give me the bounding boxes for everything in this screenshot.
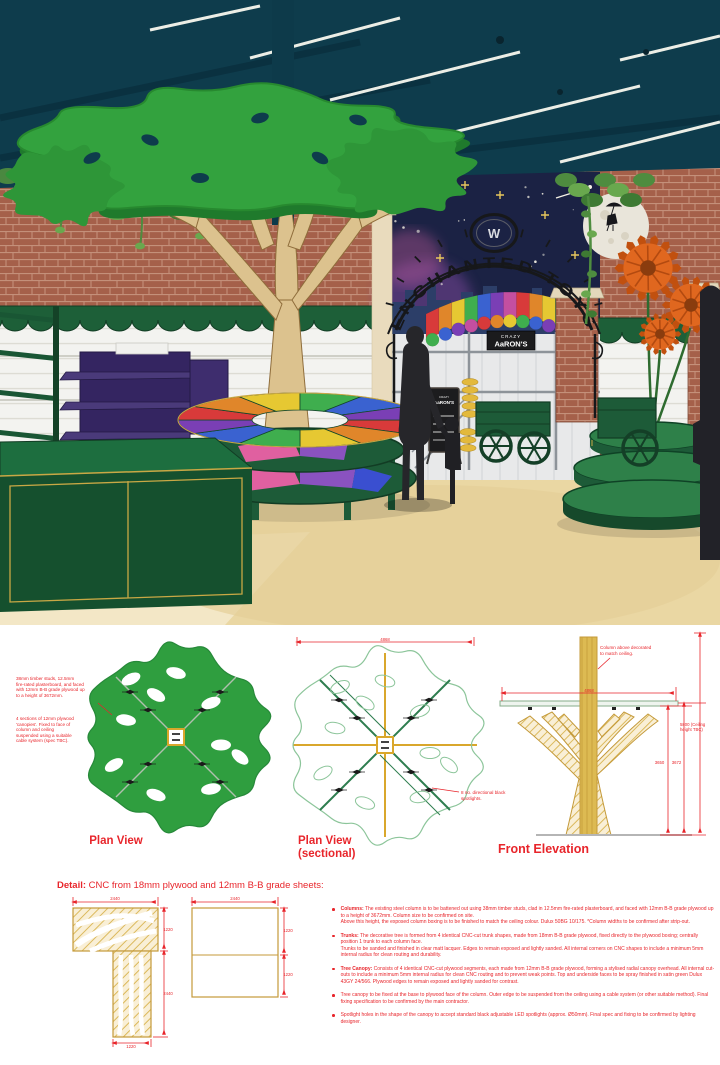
bullet-icon: [332, 935, 335, 938]
column-annotation: Column above decorated to match ceiling.: [600, 645, 672, 656]
spec-note-canopy: Tree Canopy: Consists of 4 identical CNC…: [332, 966, 716, 986]
design-sheet: CRAZY AaRON'S W ENCHANTED TOYS: [0, 0, 720, 1065]
s1-top-dim: 2440: [100, 896, 130, 901]
front-elevation-drawing: [500, 633, 706, 835]
detail-sheet-2: [192, 897, 288, 997]
bullet-icon: [332, 1014, 335, 1017]
green-counter: [0, 438, 252, 612]
bullet-icon: [332, 908, 335, 911]
plan-annotation-studs: 38mm timber studs, 12.5mm fire-rated pla…: [16, 676, 102, 698]
spec-note-trunks: Trunks: The decorative tree is formed fr…: [332, 933, 716, 959]
plan-view-drawing: [88, 642, 271, 833]
specification-notes: Columns: The existing steel column is to…: [332, 906, 716, 1032]
s2-right-dim: 1220: [280, 928, 296, 933]
elevation-column: [580, 637, 597, 835]
yellow-stock-stack: [460, 379, 478, 452]
ceiling-height-dim: 5800 (Ceiling height TBC): [680, 722, 718, 733]
dim-3650: 3650: [652, 760, 667, 765]
gondola-header-sign: [116, 343, 168, 354]
front-elevation-label: Front Elevation: [498, 842, 589, 858]
awning-sign-top-text: CRAZY: [501, 334, 521, 339]
plan-annotation-canopies: 4 sections of 12mm plywood 'canopies'. F…: [16, 716, 102, 744]
plan-view-label: Plan View: [60, 834, 172, 848]
s2-right2-dim: 1220: [280, 972, 296, 977]
store-render: CRAZY AaRON'S W ENCHANTED TOYS: [0, 0, 720, 625]
spec-note-spotlights: Spotlight holes in the shape of the cano…: [332, 1012, 716, 1025]
plan-sectional-label: Plan View (sectional): [298, 835, 356, 861]
s1-right-dim: 1220: [160, 927, 176, 932]
awning-sign-main-text: AaRON'S: [494, 340, 527, 349]
s1-right2-dim: 2440: [160, 991, 176, 996]
awning-sign: CRAZY AaRON'S: [487, 331, 535, 350]
chalkboard-sign-top-text: CRAZY: [439, 395, 449, 399]
s2-top-dim: 2440: [220, 896, 250, 901]
bullet-icon: [332, 994, 335, 997]
detail-heading: Detail: CNC from 18mm plywood and 12mm B…: [57, 880, 324, 892]
plan-sectional-drawing: [293, 646, 484, 845]
spec-note-fixing: Tree canopy to be fixed at the base to p…: [332, 992, 716, 1005]
s1-bottom-dim: 1220: [116, 1044, 146, 1049]
bullet-icon: [332, 968, 335, 971]
elevation-width-dim: 4868: [569, 688, 609, 693]
detail-sheet-1: [73, 897, 168, 1047]
chalkboard-sign-main-text: AaRON'S: [434, 400, 454, 405]
dim-3672: 3672: [669, 760, 684, 765]
sectional-width-dim: 4868: [365, 637, 405, 642]
arch-monogram: W: [488, 226, 501, 241]
spotlights-annotation: 8 no. directional black spotlights.: [461, 790, 523, 801]
spec-note-columns: Columns: The existing steel column is to…: [332, 906, 716, 926]
